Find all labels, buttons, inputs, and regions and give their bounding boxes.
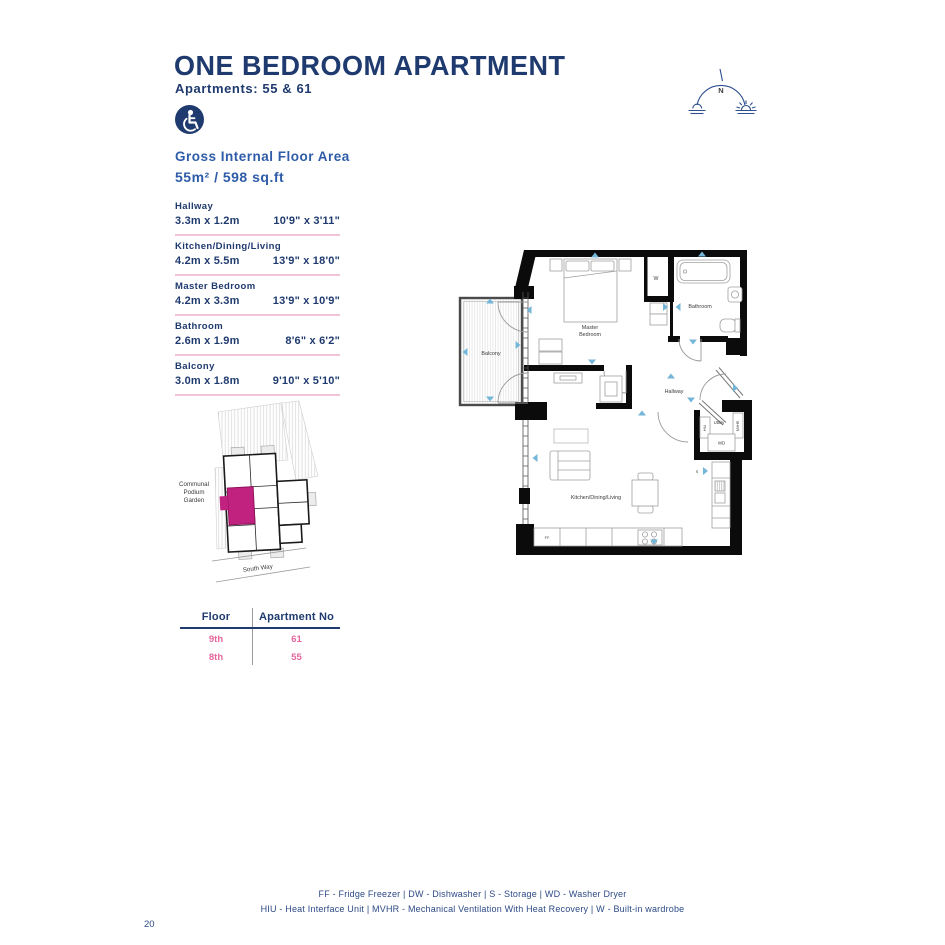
sofa: [550, 451, 590, 480]
appliance: [715, 481, 725, 491]
appliance: [715, 493, 725, 503]
room-dimension-list: Hallway 3.3m x 1.2m10'9" x 3'11" Kitchen…: [175, 196, 340, 396]
mvhr-label: MVHR: [736, 420, 740, 431]
col-floor: Floor: [180, 608, 252, 627]
street: South Way: [212, 548, 310, 582]
room-entry: Hallway 3.3m x 1.2m10'9" x 3'11": [175, 196, 340, 236]
room-metric: 2.6m x 1.9m: [175, 335, 240, 347]
wheelchair-icon: [175, 105, 204, 134]
bathroom-door-arc: [679, 339, 701, 361]
brochure-page: ONE BEDROOM APARTMENT Apartments: 55 & 6…: [0, 0, 945, 945]
bathroom-label: Bathroom: [688, 304, 712, 310]
highlighted-unit-balcony: [220, 496, 229, 510]
compass-north-label: N: [718, 86, 723, 95]
utility-label: Utility: [714, 420, 726, 425]
dresser: [539, 352, 562, 364]
pillow: [591, 261, 614, 271]
svg-text:Bedroom: Bedroom: [579, 332, 601, 338]
wardrobe-shelf: [650, 314, 667, 325]
room-entry: Kitchen/Dining/Living 4.2m x 5.5m13'9" x…: [175, 236, 340, 276]
kitchen-label: Kitchen/Dining/Living: [571, 495, 621, 501]
room-entry: Balcony 3.0m x 1.8m9'10" x 5'10": [175, 356, 340, 396]
room-metric: 4.2m x 5.5m: [175, 255, 240, 267]
room-entry: Bathroom 2.6m x 1.9m8'6" x 6'2": [175, 316, 340, 356]
room-metric: 4.2m x 3.3m: [175, 295, 240, 307]
page-number: 20: [144, 919, 155, 930]
svg-text:Podium: Podium: [184, 489, 205, 496]
ff-label: FF: [545, 536, 550, 540]
bathtub: [677, 260, 730, 283]
floor-plan: Balcony: [450, 240, 770, 575]
kitchen-counter: [534, 528, 682, 546]
living-furniture: [550, 373, 658, 513]
room-imperial: 13'9" x 18'0": [273, 255, 340, 267]
tv-unit: [600, 376, 622, 402]
floor-area: Gross Internal Floor Area 55m² / 598 sq.…: [175, 149, 350, 185]
room-name: Balcony: [175, 361, 340, 372]
table-row: 9th 61: [180, 629, 340, 647]
bedside-table: [619, 259, 631, 271]
legend-line-1: FF - Fridge Freezer | DW - Dishwasher | …: [0, 889, 945, 899]
floor-area-label: Gross Internal Floor Area: [175, 149, 350, 164]
entry-door-arc: [700, 374, 726, 400]
room-imperial: 8'6" x 6'2": [285, 335, 340, 347]
balcony-label: Balcony: [481, 351, 500, 357]
door-arcs: [498, 302, 726, 442]
bedside-table: [550, 259, 562, 271]
bedroom-furniture: [539, 259, 667, 364]
room-name: Hallway: [175, 201, 340, 212]
room-name: Bathroom: [175, 321, 340, 332]
page-title: ONE BEDROOM APARTMENT: [174, 50, 566, 82]
pillow: [566, 261, 589, 271]
wd-label: WD: [718, 441, 725, 446]
compass: N: [670, 60, 778, 143]
street-label: South Way: [242, 563, 274, 574]
dining-chair: [638, 473, 653, 480]
hiu-label: HIU: [703, 424, 707, 431]
rug: [554, 429, 588, 443]
bathroom-fixtures: [677, 260, 742, 332]
kitchen-door-arc: [658, 412, 688, 442]
site-key-plan: Communal Podium Garden South Way: [166, 398, 346, 598]
dining-table: [632, 480, 658, 506]
dining-chair: [638, 506, 653, 513]
dresser: [539, 339, 562, 351]
highlighted-unit: [227, 487, 255, 525]
page-subtitle: Apartments: 55 & 61: [175, 81, 312, 96]
col-apartment-no: Apartment No: [252, 608, 340, 627]
table-row: 8th 55: [180, 647, 340, 665]
apartment-table: Floor Apartment No 9th 61 8th 55: [180, 608, 340, 665]
garden-label: Communal Podium Garden: [179, 481, 209, 504]
basin: [728, 287, 742, 302]
room-metric: 3.3m x 1.2m: [175, 215, 240, 227]
room-imperial: 9'10" x 5'10": [273, 375, 340, 387]
hallway-label: Hallway: [665, 389, 684, 395]
sunrise-icon: [736, 101, 757, 114]
svg-text:Communal: Communal: [179, 481, 209, 488]
toilet: [720, 319, 736, 332]
legend: FF - Fridge Freezer | DW - Dishwasher | …: [0, 889, 945, 914]
room-imperial: 13'9" x 10'9": [273, 295, 340, 307]
apartment-table-header: Floor Apartment No: [180, 608, 340, 629]
svg-text:Garden: Garden: [184, 497, 205, 504]
room-metric: 3.0m x 1.8m: [175, 375, 240, 387]
sideboard: [554, 373, 582, 383]
toilet-cistern: [735, 319, 740, 332]
sunset-icon: [689, 104, 706, 113]
room-imperial: 10'9" x 3'11": [273, 215, 340, 227]
storage-label: S: [696, 470, 699, 474]
legend-line-2: HIU - Heat Interface Unit | MVHR - Mecha…: [0, 904, 945, 914]
room-name: Kitchen/Dining/Living: [175, 241, 340, 252]
room-entry: Master Bedroom 4.2m x 3.3m13'9" x 10'9": [175, 276, 340, 316]
floor-area-value: 55m² / 598 sq.ft: [175, 169, 350, 185]
balcony: Balcony: [460, 298, 522, 405]
room-name: Master Bedroom: [175, 281, 340, 292]
wardrobe-label: W: [654, 276, 659, 282]
bedroom-label: Master: [582, 325, 599, 331]
